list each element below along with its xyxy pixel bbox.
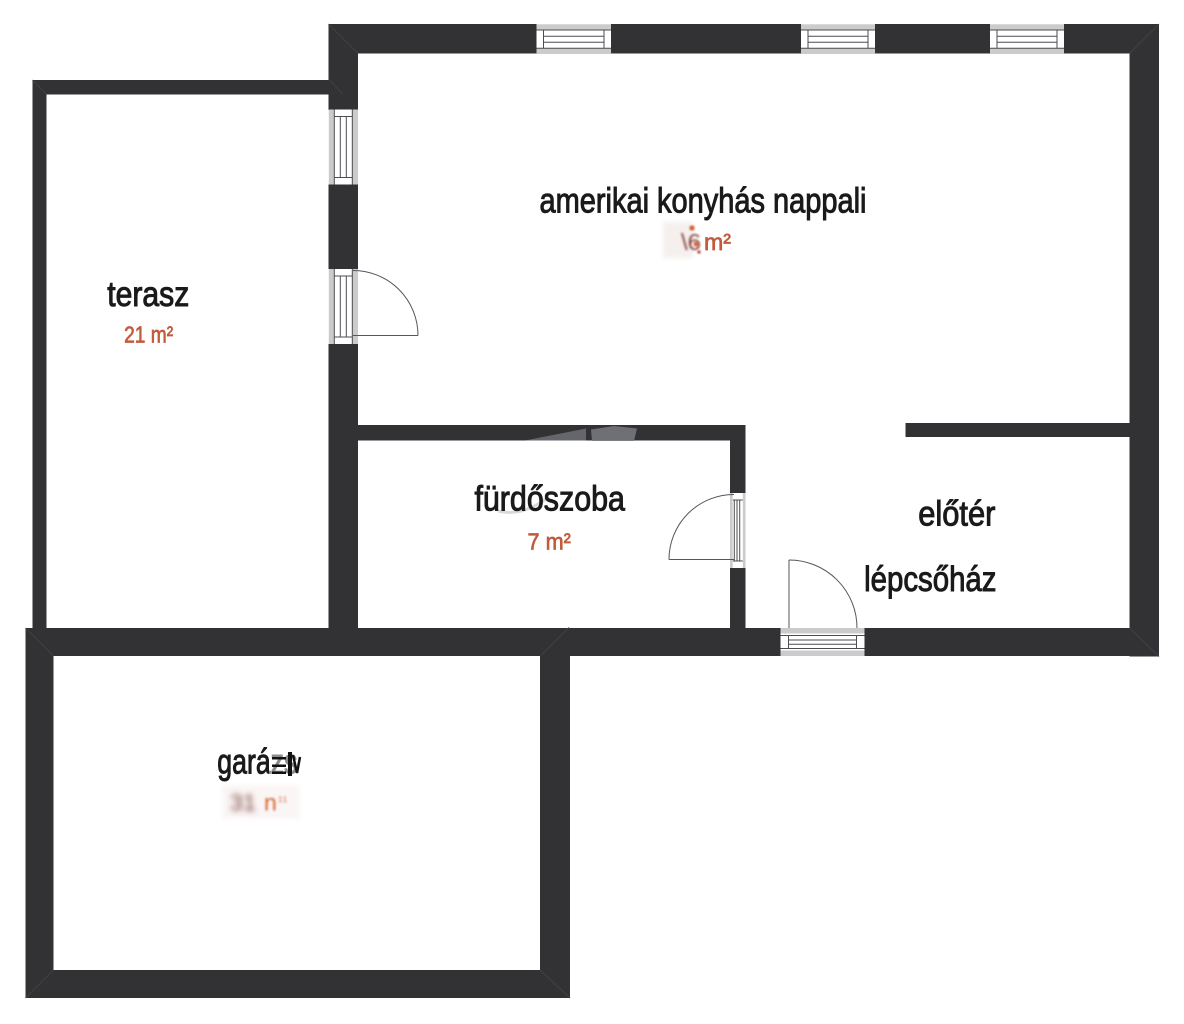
svg-text:előtér: előtér [918,495,995,534]
svg-text:21 m²: 21 m² [124,321,173,347]
svg-text:31: 31 [230,790,256,816]
svg-text:7 m²: 7 m² [528,529,572,555]
svg-text:m²: m² [704,229,731,255]
svg-text:amerikai konyhás nappali: amerikai konyhás nappali [540,182,867,221]
svg-text:fürdőszoba: fürdőszoba [474,480,625,519]
svg-text:terasz: terasz [107,275,189,314]
svg-text:¹¹: ¹¹ [278,793,288,809]
svg-text:lépcsőház: lépcsőház [864,560,996,599]
svg-text:n: n [264,790,277,816]
